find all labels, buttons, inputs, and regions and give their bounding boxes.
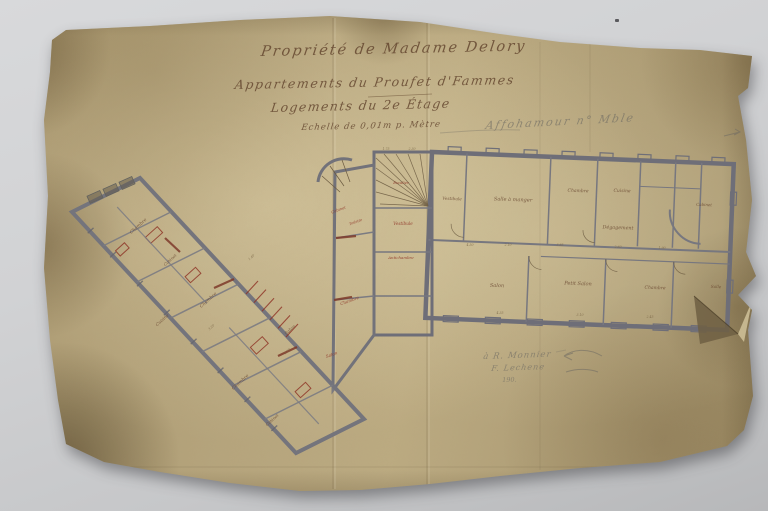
svg-text:Salle: Salle bbox=[711, 284, 722, 289]
svg-text:Vestibule: Vestibule bbox=[393, 221, 413, 226]
svg-text:1.75: 1.75 bbox=[382, 147, 389, 151]
svg-text:2.60: 2.60 bbox=[613, 245, 621, 249]
svg-text:Escalier: Escalier bbox=[392, 180, 409, 185]
right-wing-plan bbox=[425, 146, 738, 333]
svg-text:Cuisine: Cuisine bbox=[613, 188, 631, 195]
svg-text:Vestibule: Vestibule bbox=[442, 196, 462, 202]
svg-text:2.45: 2.45 bbox=[645, 315, 653, 319]
svg-text:Salle à manger: Salle à manger bbox=[494, 195, 533, 203]
svg-text:Petit Salon: Petit Salon bbox=[563, 280, 592, 287]
svg-text:2.10: 2.10 bbox=[503, 243, 511, 247]
svg-text:Chambre: Chambre bbox=[567, 188, 589, 195]
plan-sheet-wrap: VestibuleSalle à mangerChambreCuisineCab… bbox=[0, 0, 768, 511]
plan-sheet: VestibuleSalle à mangerChambreCuisineCab… bbox=[0, 0, 768, 511]
pencil-note-bottom-2: F. Lechene bbox=[491, 362, 546, 373]
svg-text:Antichambre: Antichambre bbox=[387, 255, 414, 260]
svg-text:2.30: 2.30 bbox=[407, 147, 415, 151]
svg-text:4.35: 4.35 bbox=[495, 311, 503, 315]
pencil-note-bottom-3: 190. bbox=[502, 375, 517, 384]
svg-text:3.10: 3.10 bbox=[576, 313, 583, 317]
svg-text:3.85: 3.85 bbox=[556, 243, 563, 247]
svg-text:4.50: 4.50 bbox=[465, 243, 473, 247]
svg-text:Chambre: Chambre bbox=[644, 285, 666, 292]
svg-text:Cabinet: Cabinet bbox=[696, 202, 712, 208]
table-surface: VestibuleSalle à mangerChambreCuisineCab… bbox=[0, 0, 768, 511]
svg-text:1.90: 1.90 bbox=[658, 246, 665, 250]
svg-text:Salon: Salon bbox=[490, 283, 504, 289]
